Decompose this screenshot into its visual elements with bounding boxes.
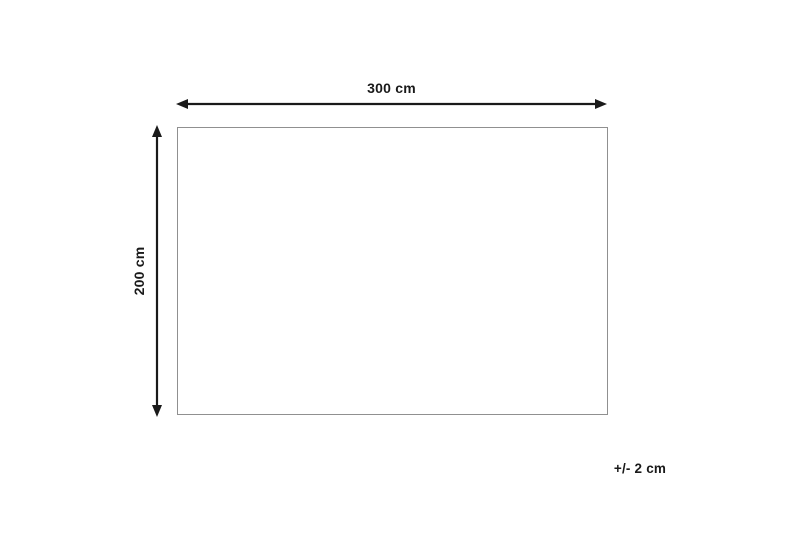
height-dimension-arrow <box>150 124 164 418</box>
arrow-left-head-icon <box>176 99 188 109</box>
width-dimension-arrow <box>175 97 608 111</box>
height-dimension-label: 200 cm <box>131 221 151 321</box>
product-outline-rectangle <box>177 127 608 415</box>
arrow-up-head-icon <box>152 125 162 137</box>
arrow-down-head-icon <box>152 405 162 417</box>
tolerance-label: +/- 2 cm <box>600 461 680 476</box>
width-dimension-label: 300 cm <box>175 80 608 96</box>
arrow-right-head-icon <box>595 99 607 109</box>
dimension-diagram: 300 cm 200 cm +/- 2 cm <box>0 0 800 533</box>
